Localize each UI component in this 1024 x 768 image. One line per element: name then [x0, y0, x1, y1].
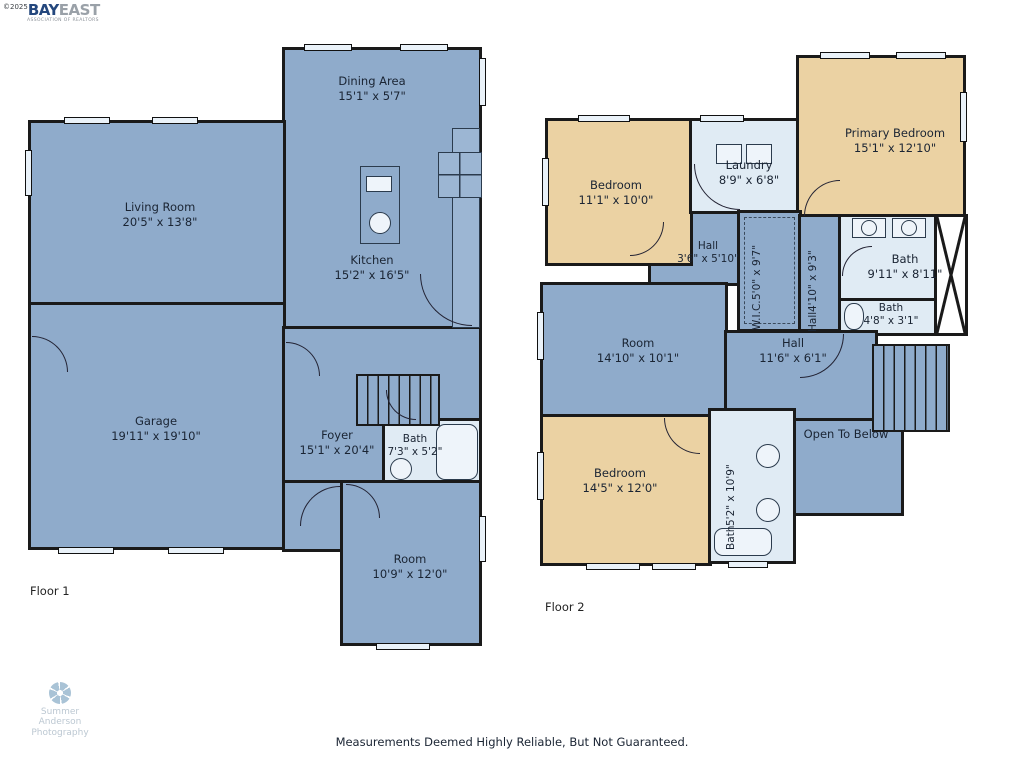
floor2-label: Floor 2 — [545, 600, 585, 614]
window — [25, 150, 32, 196]
room-label-bath1: Bath 7'3" x 5'2" — [382, 433, 448, 460]
room-label-laundry: Laundry 8'9" x 6'8" — [694, 158, 804, 187]
room-dims: 5'0" x 9'7" — [751, 245, 764, 300]
room-dims: 3'6" x 5'10" — [663, 253, 753, 266]
sink-icon — [861, 220, 877, 236]
room-label-bedroom1: Bedroom 11'1" x 10'0" — [541, 178, 691, 207]
room-label-bath-small: Bath 4'8" x 3'1" — [843, 302, 939, 329]
disclaimer-text: Measurements Deemed Highly Reliable, But… — [0, 735, 1024, 749]
watermark-line: Anderson — [8, 717, 112, 727]
sink-icon — [756, 498, 780, 522]
camera-shutter-icon — [49, 682, 71, 704]
room-dims: 15'2" x 16'5" — [299, 268, 445, 283]
room-name: Hall — [807, 312, 820, 332]
window — [64, 117, 110, 124]
room-label-bedroom2: Bedroom 14'5" x 12'0" — [540, 466, 700, 495]
room-label-room1: Room 10'9" x 12'0" — [345, 552, 475, 581]
room-name: Bath — [725, 526, 738, 550]
window — [479, 516, 486, 562]
room-label-hall-vert: Hall 4'10" x 9'3" — [806, 236, 821, 332]
room-name: Hall — [663, 240, 753, 253]
window — [168, 547, 224, 554]
window — [820, 52, 870, 59]
room-dims: 19'11" x 19'10" — [71, 429, 241, 444]
window — [586, 563, 640, 570]
room-label-bath-vert: Bath 5'2" x 10'9" — [724, 438, 739, 550]
room-dims: 8'9" x 6'8" — [694, 173, 804, 188]
room-dims: 5'2" x 10'9" — [725, 464, 738, 526]
room-name: Hall — [728, 336, 858, 351]
window — [58, 547, 114, 554]
island-cooktop-icon — [369, 212, 391, 234]
bathtub-icon — [714, 528, 772, 556]
room-name: Bedroom — [541, 178, 691, 193]
room-name: Bedroom — [540, 466, 700, 481]
floor1-label: Floor 1 — [30, 584, 70, 598]
window — [479, 58, 486, 106]
room-dims: 7'3" x 5'2" — [382, 446, 448, 459]
window — [152, 117, 198, 124]
room-dims: 9'11" x 8'11" — [855, 267, 955, 282]
room-name: Room — [345, 552, 475, 567]
room-dims: 14'10" x 10'1" — [558, 351, 718, 366]
window — [537, 312, 544, 360]
room-label-wic: W.I.C. 5'0" x 9'7" — [750, 230, 765, 330]
window — [376, 643, 430, 650]
copyright-text: ©2025 — [3, 3, 28, 11]
watermark-line: Summer — [8, 707, 112, 717]
room-label-dining: Dining Area 15'1" x 5'7" — [292, 74, 452, 103]
window — [400, 44, 448, 51]
room-dims: 15'1" x 5'7" — [292, 89, 452, 104]
window — [728, 561, 768, 568]
sink-icon — [901, 220, 917, 236]
room-name: Open To Below — [786, 427, 906, 442]
brand-name-bay: BAY — [28, 1, 59, 19]
room-name: Garage — [71, 414, 241, 429]
room-dims: 10'9" x 12'0" — [345, 567, 475, 582]
stove-icon — [438, 152, 482, 198]
brand-tagline: ASSOCIATION OF REALTORS — [27, 19, 100, 24]
bayeast-logo: ©2025BAYEAST ASSOCIATION OF REALTORS — [3, 2, 100, 24]
room-name: Bath — [382, 433, 448, 446]
room-label-open-below: Open To Below — [786, 427, 906, 442]
room-name: Laundry — [694, 158, 804, 173]
room-name: Living Room — [75, 200, 245, 215]
window — [304, 44, 352, 51]
room-label-hall-small: Hall 3'6" x 5'10" — [663, 240, 753, 267]
floorplan-image: ©2025BAYEAST ASSOCIATION OF REALTORS Din… — [0, 0, 1024, 768]
window — [896, 52, 946, 59]
room-name: Bath — [843, 302, 939, 315]
room-label-garage: Garage 19'11" x 19'10" — [71, 414, 241, 443]
room-dims: 4'8" x 3'1" — [843, 315, 939, 328]
room-name: Primary Bedroom — [820, 126, 970, 141]
room-dims: 11'6" x 6'1" — [728, 351, 858, 366]
room-name: Bath — [855, 252, 955, 267]
window — [700, 115, 744, 122]
photographer-watermark: Summer Anderson Photography — [8, 682, 112, 738]
room-dims: 20'5" x 13'8" — [75, 215, 245, 230]
room-dims: 11'1" x 10'0" — [541, 193, 691, 208]
window — [652, 563, 696, 570]
room-name: Kitchen — [299, 253, 445, 268]
island-sink-icon — [366, 176, 392, 192]
brand-name-east: EAST — [59, 1, 100, 19]
room-name: Dining Area — [292, 74, 452, 89]
room-name: Room — [558, 336, 718, 351]
room-name: W.I.C. — [751, 300, 764, 330]
room-dims: 4'10" x 9'3" — [807, 250, 820, 312]
room-label-living: Living Room 20'5" x 13'8" — [75, 200, 245, 229]
room-dims: 14'5" x 12'0" — [540, 481, 700, 496]
room-label-room2: Room 14'10" x 10'1" — [558, 336, 718, 365]
room-label-kitchen: Kitchen 15'2" x 16'5" — [299, 253, 445, 282]
sink-icon — [756, 444, 780, 468]
room-label-hall-main: Hall 11'6" x 6'1" — [728, 336, 858, 365]
floor2-stairs — [872, 344, 950, 432]
room-label-primary: Primary Bedroom 15'1" x 12'10" — [820, 126, 970, 155]
room-label-bath-big: Bath 9'11" x 8'11" — [855, 252, 955, 281]
window — [578, 115, 630, 122]
floor1-bath-sink-icon — [390, 458, 412, 480]
room-dims: 15'1" x 12'10" — [820, 141, 970, 156]
